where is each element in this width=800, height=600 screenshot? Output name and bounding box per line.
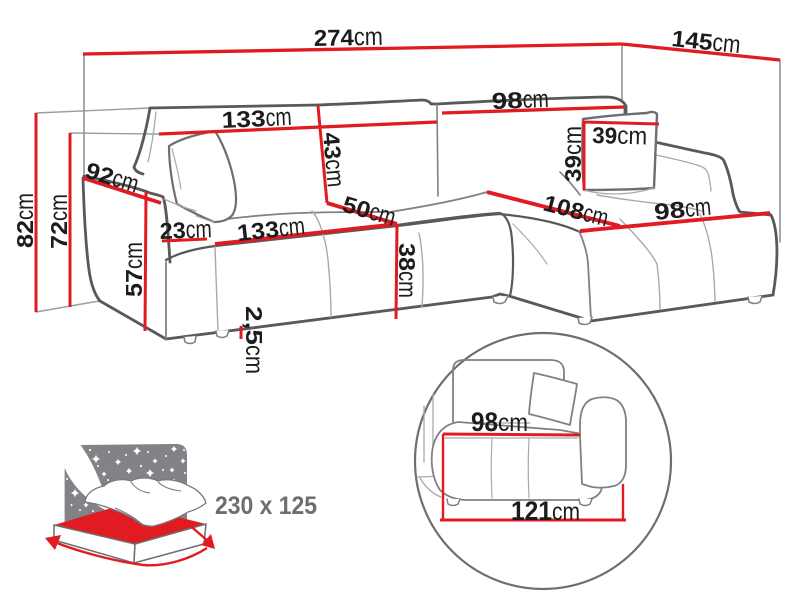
svg-text:38cm: 38cm — [393, 243, 421, 298]
svg-text:274cm: 274cm — [314, 23, 383, 52]
svg-text:72cm: 72cm — [45, 194, 73, 249]
svg-text:2,5cm: 2,5cm — [240, 306, 268, 374]
svg-text:92cm: 92cm — [82, 156, 142, 199]
svg-text:23cm: 23cm — [159, 215, 212, 245]
svg-text:39cm: 39cm — [559, 126, 587, 182]
svg-text:98cm: 98cm — [471, 407, 528, 437]
svg-text:98cm: 98cm — [653, 193, 712, 226]
svg-text:43cm: 43cm — [317, 131, 350, 188]
svg-text:133cm: 133cm — [221, 103, 292, 134]
svg-text:39cm: 39cm — [592, 121, 648, 150]
svg-text:98cm: 98cm — [491, 85, 549, 115]
svg-text:82cm: 82cm — [11, 193, 39, 248]
svg-text:230 x 125: 230 x 125 — [215, 492, 317, 520]
svg-text:121cm: 121cm — [511, 496, 580, 526]
svg-text:145cm: 145cm — [670, 24, 742, 59]
svg-text:57cm: 57cm — [120, 242, 148, 297]
